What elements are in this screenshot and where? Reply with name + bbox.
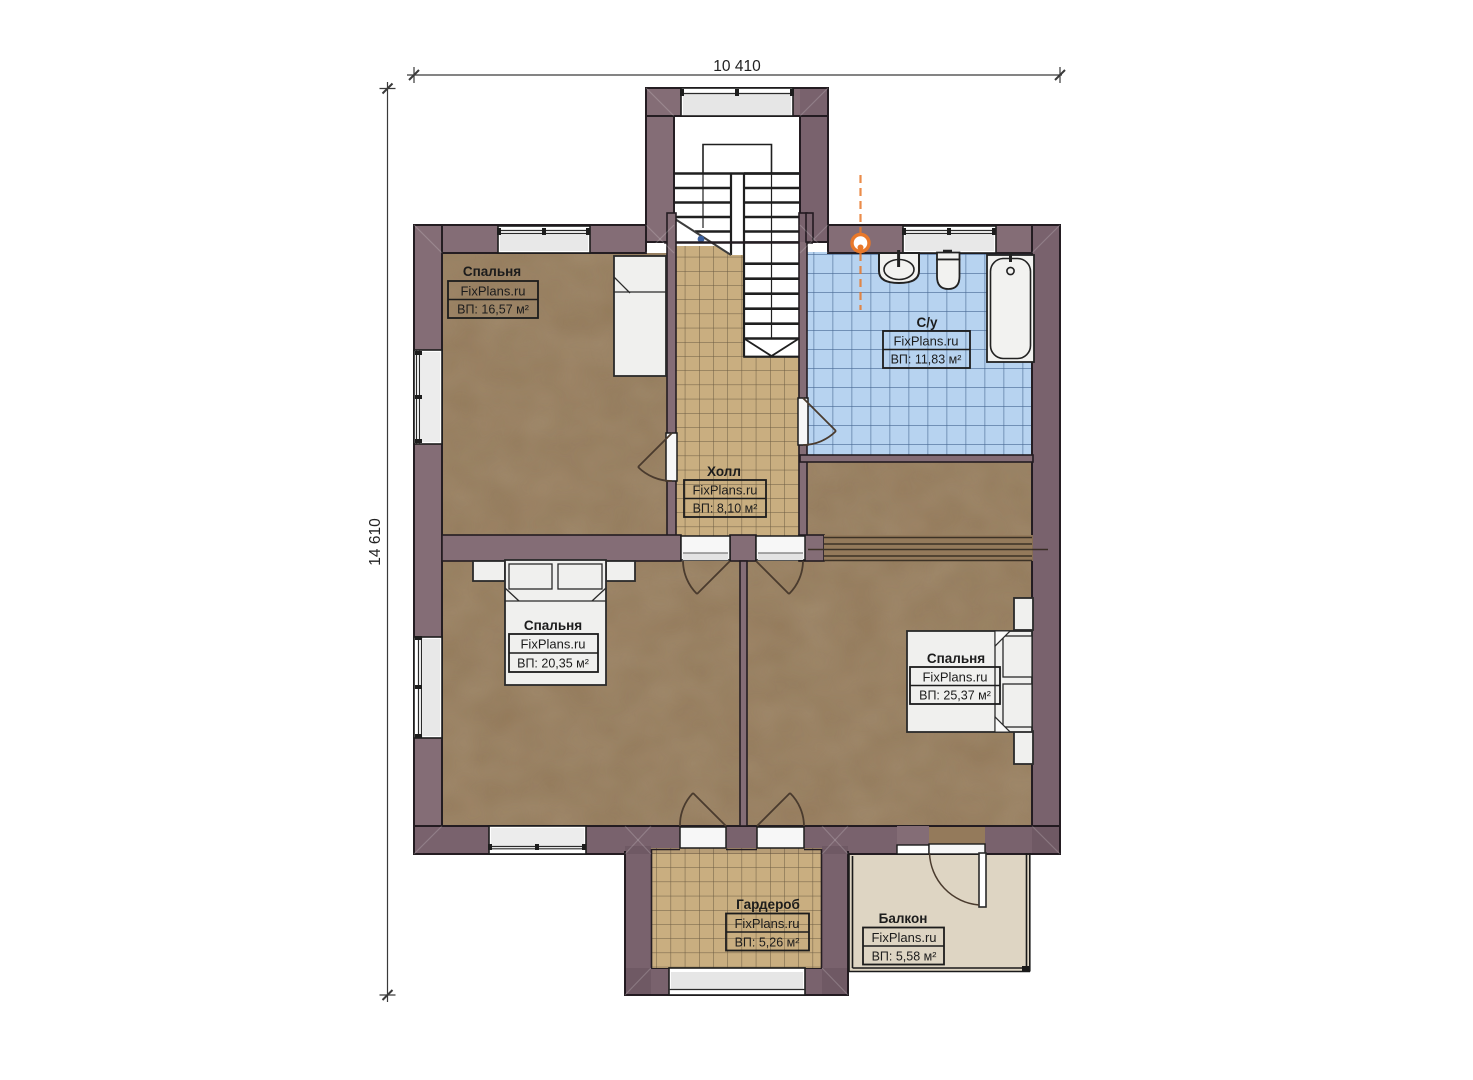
- svg-text:FixPlans.ru: FixPlans.ru: [520, 637, 585, 652]
- svg-text:ВП: 20,35 м²: ВП: 20,35 м²: [517, 657, 589, 671]
- svg-text:FixPlans.ru: FixPlans.ru: [460, 284, 525, 299]
- svg-text:Балкон: Балкон: [879, 911, 928, 926]
- svg-text:ВП: 16,57 м²: ВП: 16,57 м²: [457, 303, 529, 317]
- svg-text:Спальня: Спальня: [524, 618, 582, 633]
- svg-text:ВП: 5,58 м²: ВП: 5,58 м²: [872, 950, 937, 964]
- svg-text:ВП: 25,37 м²: ВП: 25,37 м²: [919, 689, 991, 703]
- svg-text:ВП: 8,10 м²: ВП: 8,10 м²: [693, 502, 758, 516]
- svg-text:Холл: Холл: [707, 464, 741, 479]
- svg-text:10 410: 10 410: [713, 58, 761, 75]
- svg-text:FixPlans.ru: FixPlans.ru: [922, 670, 987, 685]
- svg-text:Спальня: Спальня: [463, 264, 521, 279]
- svg-text:FixPlans.ru: FixPlans.ru: [893, 334, 958, 349]
- svg-text:С/у: С/у: [916, 315, 938, 330]
- svg-text:FixPlans.ru: FixPlans.ru: [734, 916, 799, 931]
- svg-text:Спальня: Спальня: [927, 651, 985, 666]
- svg-text:Гардероб: Гардероб: [736, 897, 800, 912]
- svg-text:ВП: 5,26 м²: ВП: 5,26 м²: [735, 936, 800, 950]
- svg-text:FixPlans.ru: FixPlans.ru: [871, 930, 936, 945]
- svg-text:ВП: 11,83 м²: ВП: 11,83 м²: [891, 353, 962, 367]
- svg-text:FixPlans.ru: FixPlans.ru: [692, 483, 757, 498]
- svg-text:14 610: 14 610: [367, 518, 384, 566]
